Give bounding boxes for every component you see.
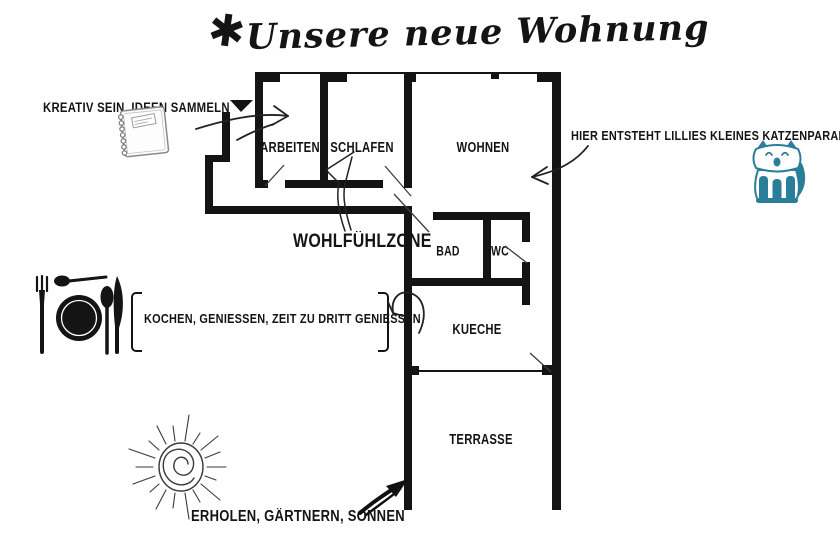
wall-bad-wc-divider — [483, 212, 491, 280]
wall-kueche-nub-left — [412, 366, 419, 375]
wall-corridor-left — [205, 155, 213, 214]
room-label-kueche: KUECHE — [452, 322, 501, 338]
place-setting-icon — [37, 276, 123, 355]
asterisk-star-icon: ✱ — [205, 8, 248, 57]
right-bracket — [378, 292, 389, 352]
sun-icon — [129, 415, 226, 519]
page-title-text: Unsere neue Wohnung — [245, 5, 709, 60]
wall-arbeiten-schlafen-divider — [320, 72, 328, 188]
room-label-schlafen: SCHLAFEN — [330, 140, 393, 156]
left-bracket — [131, 292, 142, 352]
connector-wohlfuehlzone — [326, 152, 354, 231]
cat-icon — [754, 140, 806, 203]
entrance-triangle-icon — [230, 100, 253, 112]
wall-central-upper — [404, 72, 412, 188]
wall-arbeiten-foot — [255, 180, 268, 188]
wall-top-tick — [491, 72, 499, 79]
room-label-terrasse: TERRASSE — [449, 432, 512, 448]
room-label-bad: BAD — [436, 244, 460, 259]
floorplan-poster: ✱ Unsere neue Wohnung ARBEITEN SCHLAFEN … — [0, 0, 840, 560]
room-label-arbeiten: ARBEITEN — [260, 140, 320, 156]
wall-kueche-nub-right — [542, 365, 552, 375]
wall-bad-wc-top — [433, 212, 525, 220]
room-label-wohnen: WOHNEN — [457, 140, 510, 156]
annotation-kreativ: KREATIV SEIN, IDEEN SAMMELN — [43, 100, 230, 115]
room-label-wc: WC — [491, 244, 509, 259]
page-title: ✱ Unsere neue Wohnung — [208, 10, 709, 56]
wall-arbeiten-left — [255, 72, 263, 188]
wall-right-exterior — [552, 72, 561, 510]
wall-wc-right-upper — [522, 212, 530, 242]
wall-schlafen-bottom — [285, 180, 383, 188]
annotation-wohlfuehlzone: WOHLFÜHLZONE — [293, 231, 432, 253]
wall-central-lower — [404, 212, 412, 510]
wall-corridor-bottom — [205, 206, 412, 214]
wall-bad-bottom — [404, 278, 525, 286]
wall-entry-step-v — [222, 112, 230, 162]
annotation-erholen: ERHOLEN, GÄRTNERN, SONNEN — [191, 508, 405, 526]
annotation-katzenparadies: HIER ENTSTEHT LILLIES KLEINES KATZENPARA… — [571, 128, 840, 143]
wall-kueche-terrasse-line — [408, 370, 543, 372]
